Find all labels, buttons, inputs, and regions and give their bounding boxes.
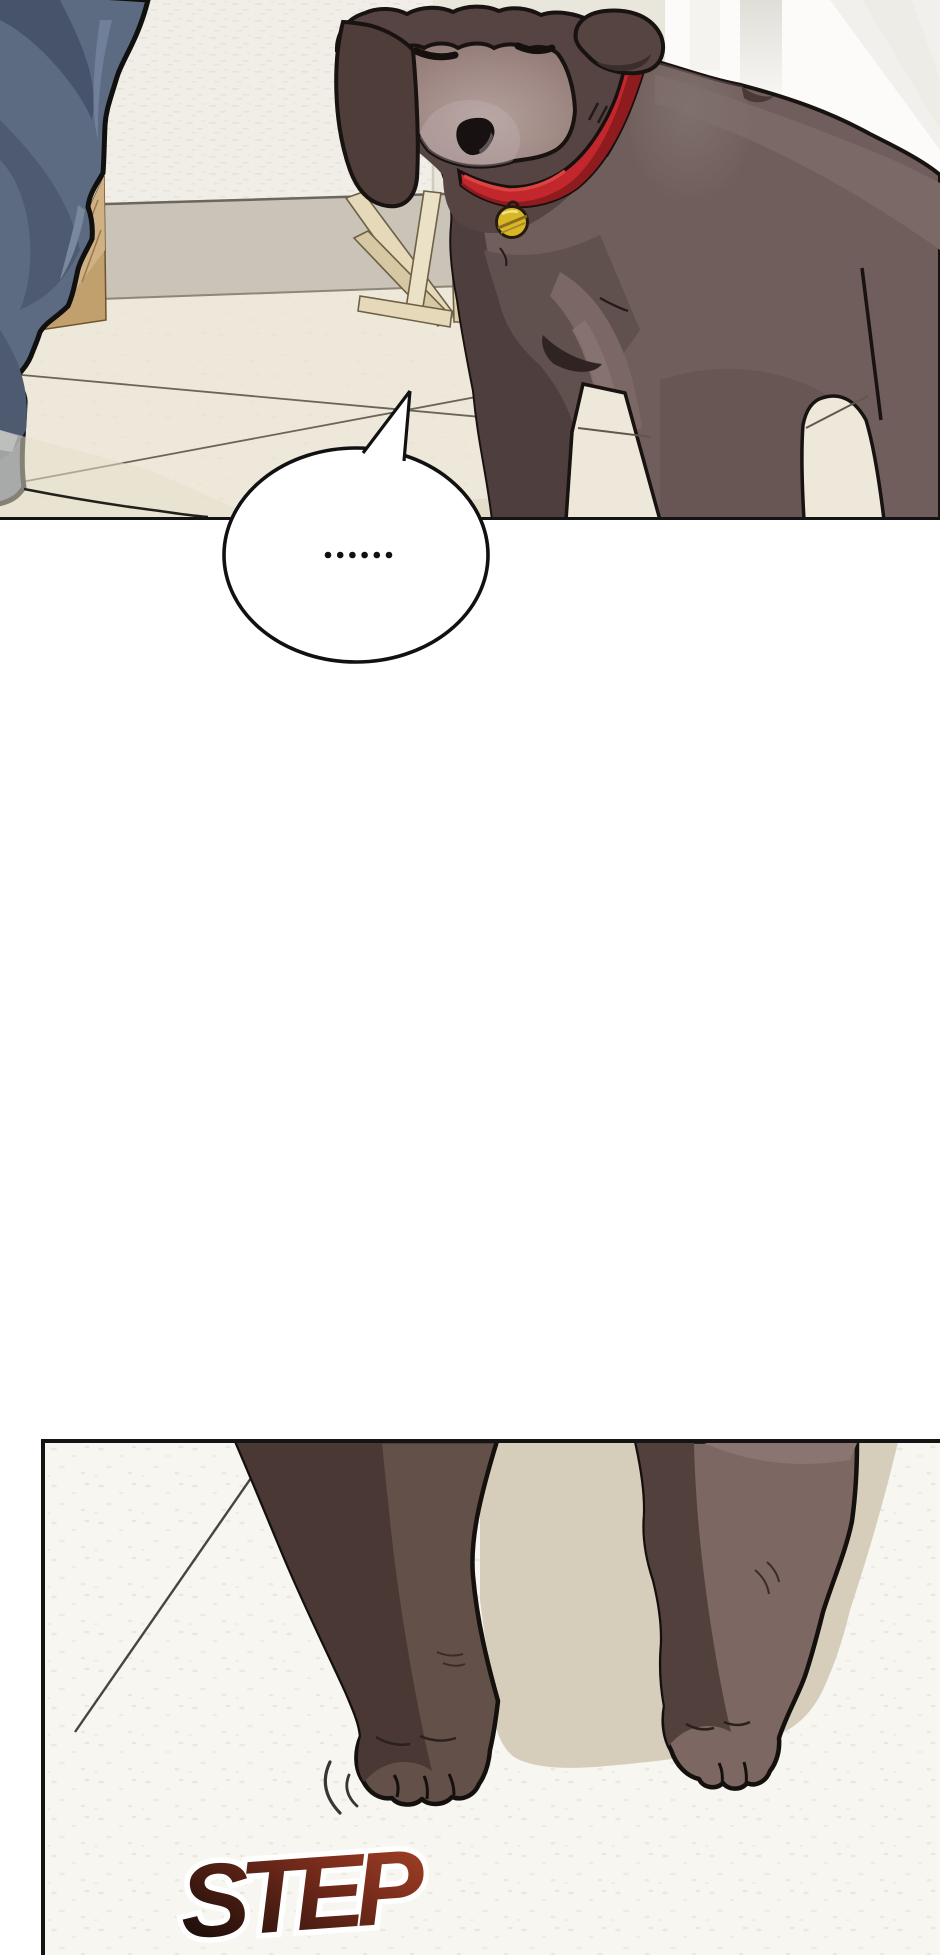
svg-text:STEP: STEP <box>176 1828 429 1955</box>
